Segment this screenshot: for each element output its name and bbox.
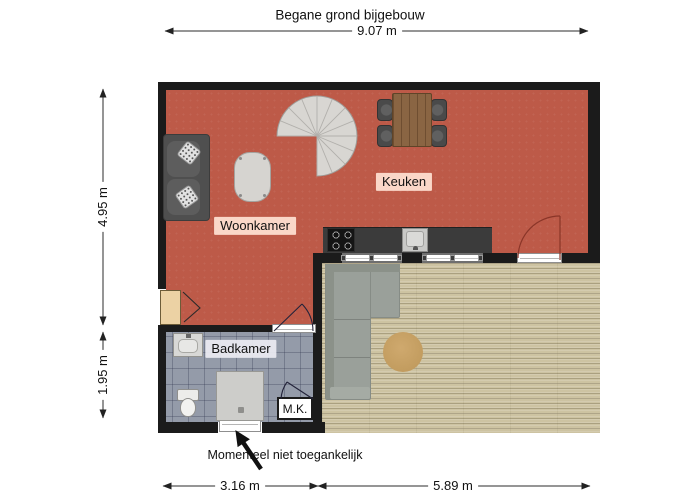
room-label-keuken: Keuken xyxy=(376,173,432,191)
meter-closet-door-swing xyxy=(281,382,313,399)
plan-overlay xyxy=(0,0,700,500)
dimension-label-bottom-left: 3.16 m xyxy=(215,478,265,494)
page-title: Begane grond bijgebouw xyxy=(275,8,424,25)
dimension-label-bottom-right: 5.89 m xyxy=(428,478,478,494)
dimension-label-left-lower: 1.95 m xyxy=(95,350,111,400)
room-label-woonkamer: Woonkamer xyxy=(214,217,296,235)
deck-door-swing xyxy=(518,216,560,260)
entry-door-swing xyxy=(183,292,200,322)
dimension-label-top: 9.07 m xyxy=(352,23,402,39)
bathroom-door-swing xyxy=(274,304,313,331)
room-label-badkamer: Badkamer xyxy=(205,340,276,358)
dimension-label-left-upper: 4.95 m xyxy=(95,182,111,232)
dimension-lines xyxy=(103,31,590,486)
inaccessible-note: Momenteel niet toegankelijk xyxy=(208,448,363,464)
floorplan: M.K. xyxy=(0,0,700,500)
